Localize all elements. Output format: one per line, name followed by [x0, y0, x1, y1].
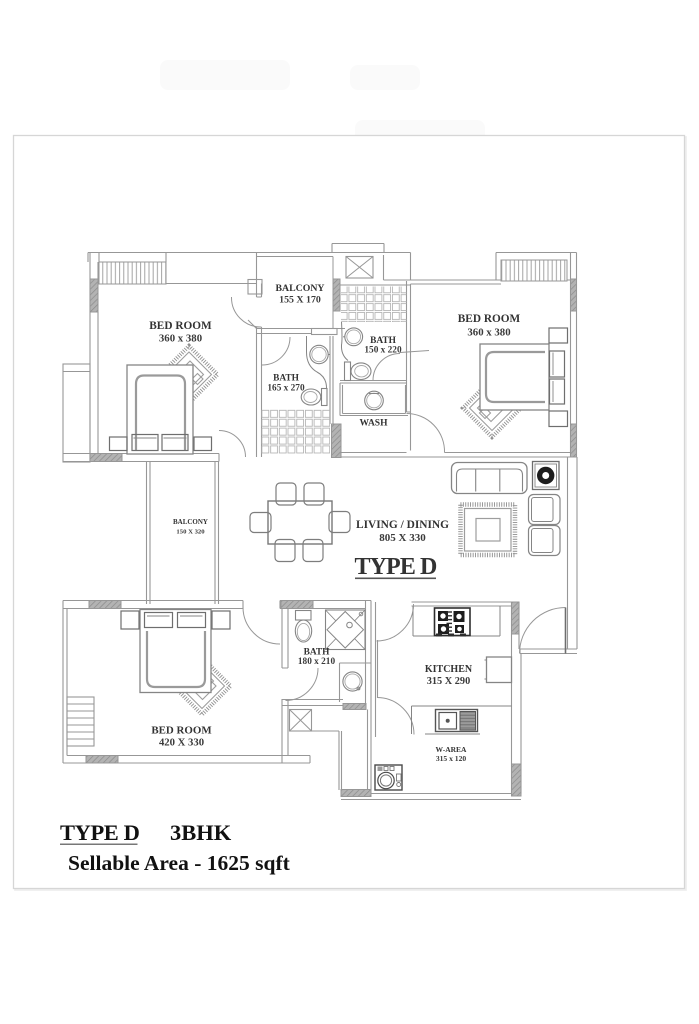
svg-text:BATH: BATH [370, 336, 397, 346]
svg-text:BALCONY: BALCONY [276, 283, 325, 294]
svg-text:TYPE D: TYPE D [355, 554, 438, 580]
svg-text:BED ROOM: BED ROOM [151, 725, 211, 737]
svg-text:BED ROOM: BED ROOM [149, 320, 212, 332]
svg-text:360 x 380: 360 x 380 [159, 333, 202, 345]
svg-text:155 X 170: 155 X 170 [279, 295, 321, 306]
svg-text:BED ROOM: BED ROOM [458, 313, 521, 325]
svg-text:3BHK: 3BHK [170, 820, 232, 845]
svg-text:TYPE D: TYPE D [60, 820, 140, 845]
svg-text:BATH: BATH [273, 374, 300, 384]
svg-text:805 X 330: 805 X 330 [379, 532, 426, 544]
svg-text:BATH: BATH [304, 648, 331, 658]
svg-text:LIVING / DINING: LIVING / DINING [356, 519, 449, 531]
svg-text:180 x 210: 180 x 210 [298, 657, 336, 667]
svg-text:WASH: WASH [360, 419, 389, 429]
svg-text:150 x 220: 150 x 220 [364, 346, 402, 356]
svg-text:Sellable Area - 1625 sqft: Sellable Area - 1625 sqft [68, 851, 291, 875]
svg-text:W-AREA: W-AREA [436, 745, 468, 754]
svg-text:360 x 380: 360 x 380 [467, 327, 510, 339]
svg-text:BALCONY: BALCONY [173, 518, 208, 526]
svg-text:315 x 120: 315 x 120 [436, 754, 467, 763]
svg-text:315 X 290: 315 X 290 [427, 676, 470, 687]
svg-text:165 x 270: 165 x 270 [267, 384, 305, 394]
svg-text:KITCHEN: KITCHEN [425, 664, 473, 675]
svg-text:420 X 330: 420 X 330 [159, 737, 204, 749]
svg-text:150 X 320: 150 X 320 [176, 529, 205, 536]
